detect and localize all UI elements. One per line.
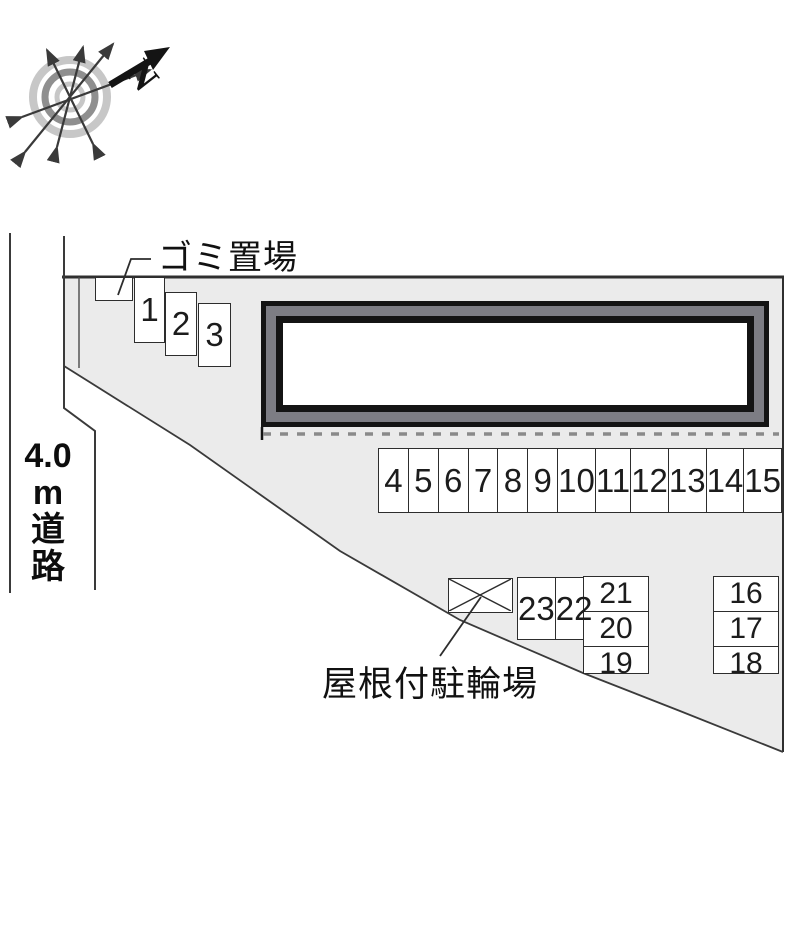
parking-stall-19: 19 bbox=[584, 646, 648, 681]
parking-stall-2: 2 bbox=[165, 292, 197, 356]
parking-stall-13: 13 bbox=[668, 449, 706, 512]
parking-stall-12: 12 bbox=[630, 449, 668, 512]
parking-stall-1: 1 bbox=[134, 277, 165, 343]
parking-stall-9: 9 bbox=[527, 449, 557, 512]
parking-stall-23: 23 bbox=[518, 578, 555, 639]
parking-row-4-15: 456789101112131415 bbox=[378, 448, 782, 513]
parking-stall-21: 21 bbox=[584, 577, 648, 611]
parking-stall-10: 10 bbox=[557, 449, 595, 512]
parking-stall-15: 15 bbox=[743, 449, 781, 512]
parking-stall-17: 17 bbox=[714, 611, 778, 646]
parking-stall-6: 6 bbox=[438, 449, 468, 512]
parking-stall-5: 5 bbox=[408, 449, 438, 512]
building-outline bbox=[261, 301, 769, 427]
site-plan-canvas: N 123 456789101112131415 212019 161718 2… bbox=[0, 0, 800, 940]
road-width-label-line: 路 bbox=[18, 549, 78, 586]
parking-stall-14: 14 bbox=[706, 449, 744, 512]
parking-column-21-19: 212019 bbox=[583, 576, 649, 674]
bicycle-shed-box bbox=[448, 578, 513, 613]
road-width-label-line: 道 bbox=[18, 512, 78, 549]
bicycle-shed-x-mark bbox=[449, 579, 511, 611]
garbage-area-label: ゴミ置場 bbox=[158, 230, 298, 279]
parking-stall-4: 4 bbox=[379, 449, 408, 512]
building-interior bbox=[276, 316, 754, 412]
bicycle-shed-label: 屋根付駐輪場 bbox=[322, 656, 538, 707]
parking-stall-16: 16 bbox=[714, 577, 778, 611]
parking-stall-8: 8 bbox=[497, 449, 527, 512]
parking-pair-23-22: 2322 bbox=[517, 577, 584, 640]
parking-stall-11: 11 bbox=[595, 449, 630, 512]
compass-rose: N bbox=[22, 44, 170, 152]
road-width-label: 4.0m道路 bbox=[18, 438, 78, 586]
parking-stall-22: 22 bbox=[555, 578, 593, 639]
parking-column-16-18: 161718 bbox=[713, 576, 779, 674]
garbage-area-box bbox=[95, 277, 133, 301]
parking-stall-18: 18 bbox=[714, 646, 778, 681]
parking-stall-3: 3 bbox=[198, 303, 231, 367]
road-width-label-line: m bbox=[18, 475, 78, 512]
parking-stall-7: 7 bbox=[468, 449, 498, 512]
road-width-label-line: 4.0 bbox=[18, 438, 78, 475]
parking-stall-20: 20 bbox=[584, 611, 648, 646]
